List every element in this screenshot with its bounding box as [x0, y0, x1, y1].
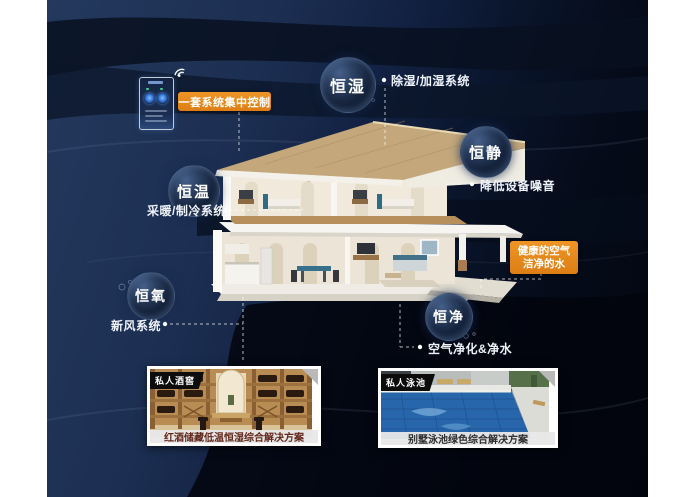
callout-line1: 健康的空气: [518, 245, 571, 258]
bubble-heng-jing2[interactable]: 恒净: [425, 293, 473, 341]
bubble-label: 恒氧: [135, 286, 167, 306]
callout-line2: 洁净的水: [523, 258, 565, 271]
bubble-label: 恒静: [469, 142, 503, 163]
infographic-canvas: 一套系统集中控制 恒湿 恒静 恒温 恒氧 恒净 除湿/加湿系统 降低设备噪音 采…: [0, 0, 700, 497]
bubble-label: 恒湿: [330, 73, 366, 97]
phone-titlebar: [148, 81, 163, 84]
wine-cellar-tag: 私人酒窖: [150, 372, 204, 389]
note-dehumidify-humidify: 除湿/加湿系统: [391, 72, 470, 89]
wifi-icon: [171, 63, 189, 78]
bubble-heng-jing[interactable]: 恒静: [460, 126, 512, 178]
phone-menu-row: [145, 120, 167, 122]
wine-cellar-card[interactable]: 私人酒窖 红酒储藏低温恒湿综合解决方案: [147, 366, 321, 446]
phone-indicator: [146, 88, 149, 90]
bubble-label: 恒温: [177, 181, 211, 202]
phone-dial-button[interactable]: [157, 93, 168, 104]
wine-cellar-caption: 红酒储藏低温恒湿综合解决方案: [150, 430, 318, 443]
note-air-water-purify: 空气净化&净水: [428, 340, 512, 357]
central-control-text: 一套系统集中控制: [179, 94, 271, 110]
phone-indicator: [160, 88, 163, 90]
corner-ribbon: [302, 369, 318, 385]
central-control-label: 一套系统集中控制: [178, 92, 271, 111]
pool-card[interactable]: 私人泳池 别墅泳池绿色综合解决方案: [378, 368, 558, 448]
bubble-heng-yang[interactable]: 恒氧: [127, 272, 175, 320]
healthy-air-water-callout: 健康的空气 洁净的水: [510, 241, 578, 274]
note-fresh-air: 新风系统: [111, 317, 161, 334]
bubble-heng-shi[interactable]: 恒湿: [320, 57, 376, 113]
bubble-label: 恒净: [433, 307, 465, 327]
phone-dial-button[interactable]: [144, 93, 155, 104]
phone-menu-row: [145, 115, 163, 117]
phone-menu-row: [145, 110, 167, 112]
pool-caption: 别墅泳池绿色综合解决方案: [381, 432, 555, 445]
note-heating-cooling: 采暖/制冷系统: [147, 202, 226, 219]
smart-home-controller-phone[interactable]: [139, 77, 174, 130]
corner-ribbon: [539, 371, 555, 387]
pool-tag: 私人泳池: [381, 374, 435, 391]
note-reduce-noise: 降低设备噪音: [480, 177, 555, 194]
